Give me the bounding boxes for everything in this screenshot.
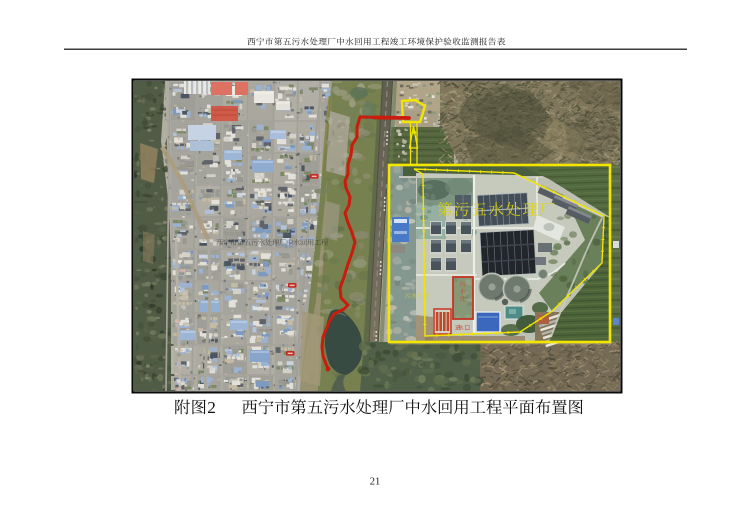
svg-text:2: 2 [207, 398, 216, 417]
svg-text:口: 口 [464, 325, 470, 332]
svg-text:21: 21 [370, 477, 381, 488]
